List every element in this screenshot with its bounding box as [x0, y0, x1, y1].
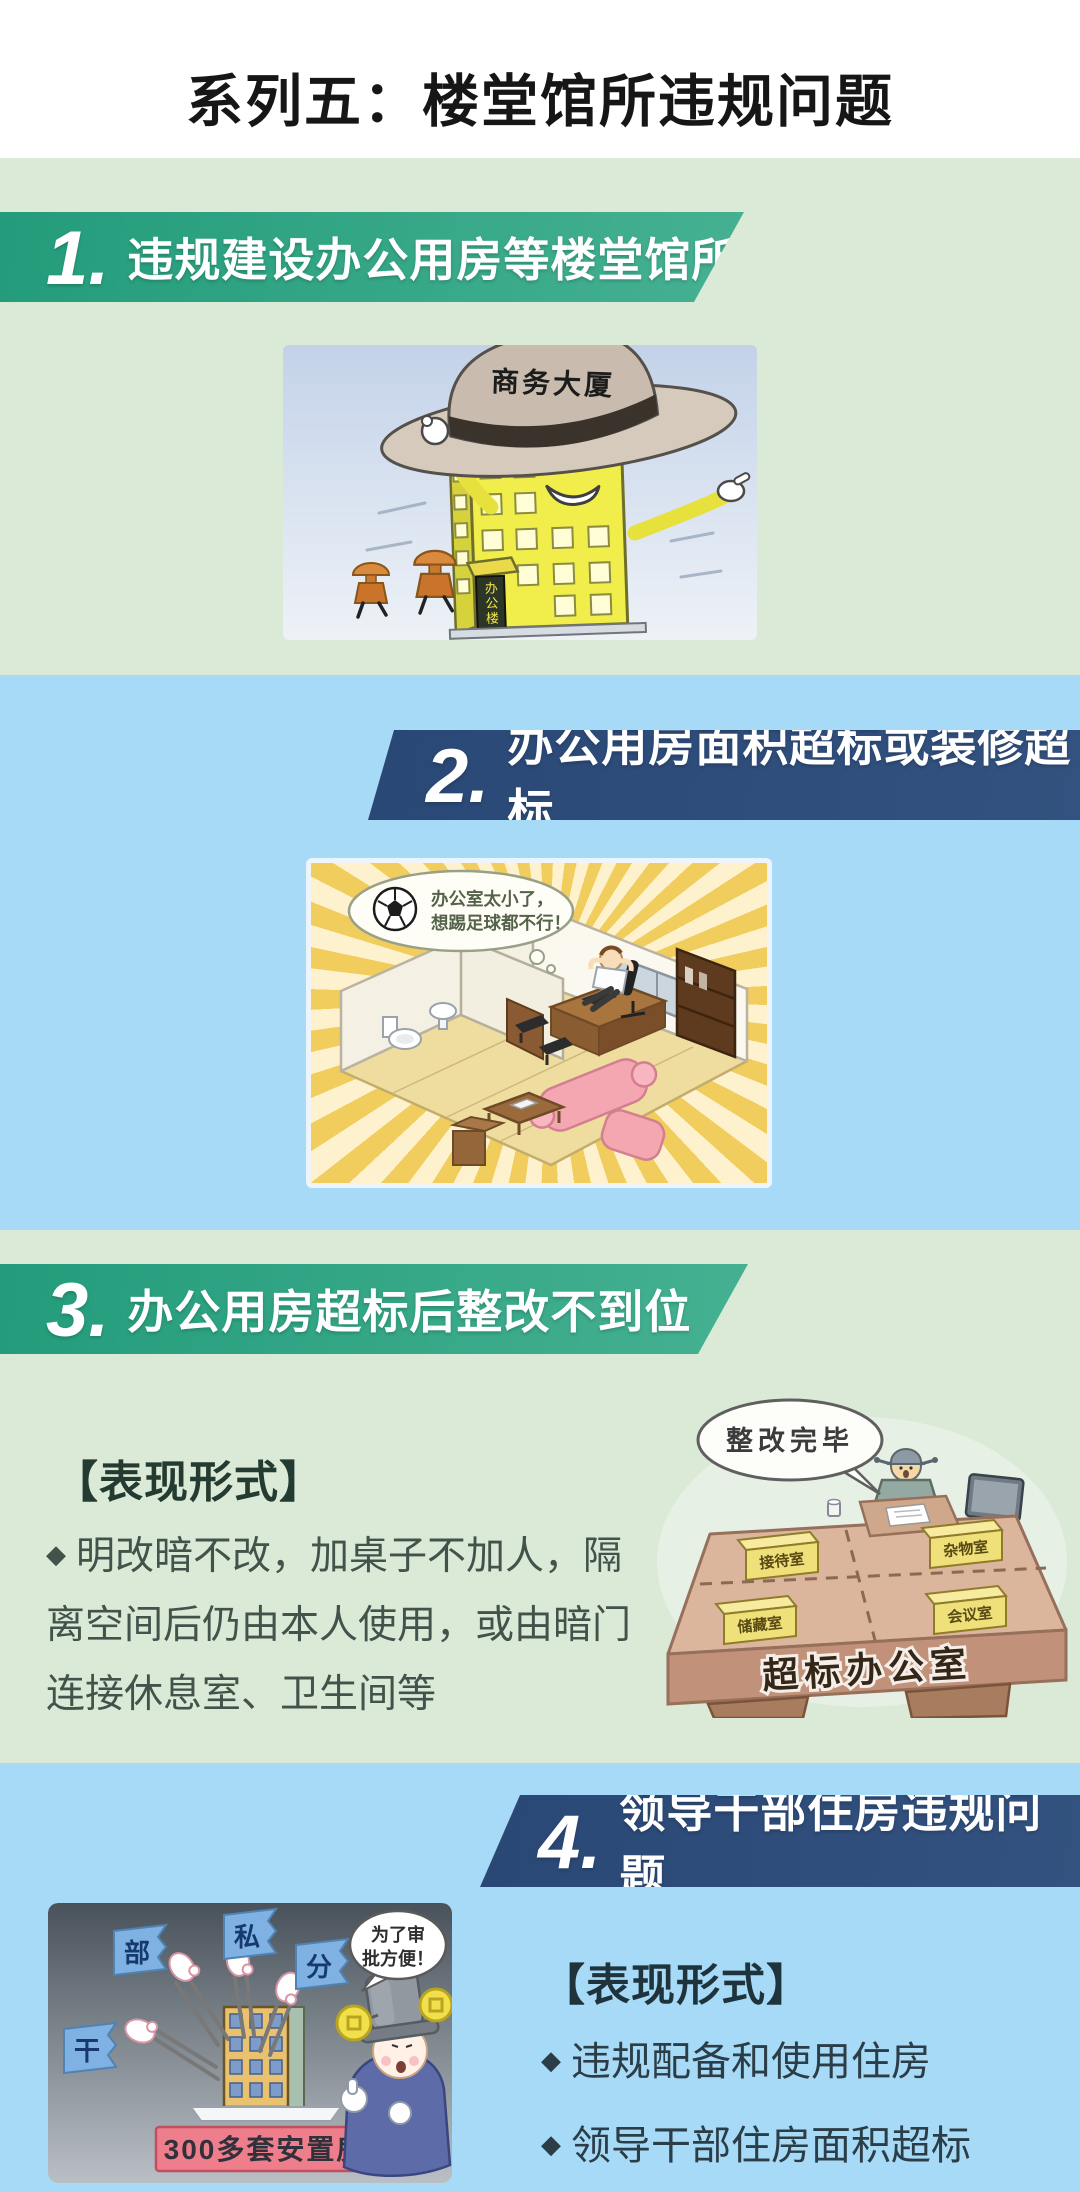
- oversized-office-cartoon: 办公室太小了， 想踢足球都不行！: [306, 858, 772, 1188]
- section-1: 1. 违规建设办公用房等楼堂馆所: [0, 158, 1080, 675]
- flag-text: 部: [124, 1938, 150, 1968]
- diamond-bullet-icon: ◆: [541, 2129, 561, 2159]
- section-2-banner: 2. 办公用房面积超标或装修超标: [368, 730, 1080, 820]
- flag-text: 分: [306, 1952, 332, 1982]
- bullet-text: 违规配备和使用住房: [571, 2040, 931, 2084]
- section-4-forms-heading: 【表现形式】: [541, 1949, 811, 2013]
- coin-icon: [420, 1989, 452, 2021]
- speech-text-line1: 办公室太小了，: [431, 889, 554, 909]
- bullet-item: ◆领导干部住房面积超标: [541, 2113, 971, 2171]
- section-1-number: 1.: [46, 221, 109, 297]
- section-3-forms-heading: 【表现形式】: [54, 1446, 324, 1510]
- speech-text: 整改完毕: [726, 1425, 854, 1456]
- building-cartoon-svg: 办公楼 商务大厦: [283, 345, 757, 640]
- bullet-text: 领导干部住房面积超标: [571, 2124, 971, 2168]
- tent-sign-reception: 接待室: [738, 1532, 818, 1580]
- section-2: 2. 办公用房面积超标或装修超标: [0, 675, 1080, 1230]
- housing-grab-cartoon: 300多套安置房 干: [48, 1903, 452, 2183]
- apartment-building: [224, 2007, 304, 2107]
- diamond-bullet-icon: ◆: [46, 1539, 66, 1569]
- flag-text: 干: [74, 2036, 100, 2066]
- speech-text-line2: 想踢足球都不行！: [430, 913, 571, 933]
- section-3-bullet: ◆明改暗不改，加桌子不加人，隔离空间后仍由本人使用，或由暗门连接休息室、卫生间等: [46, 1520, 642, 1729]
- oversized-office-svg: 办公室太小了， 想踢足球都不行！: [311, 863, 767, 1183]
- hat-label-text: 商务大厦: [491, 366, 616, 401]
- section-3-number: 3.: [46, 1273, 109, 1349]
- tent-sign-meeting: 会议室: [926, 1586, 1006, 1634]
- bullet-item: ◆违规配备和使用住房: [541, 2029, 971, 2087]
- section-4-bullets: ◆违规配备和使用住房 ◆领导干部住房面积超标: [541, 2029, 971, 2192]
- infographic-page: 系列五：楼堂馆所违规问题 1. 违规建设办公用房等楼堂馆所: [0, 0, 1080, 2192]
- tent-sign-storage: 杂物室: [922, 1520, 1002, 1568]
- section-3-banner: 3. 办公用房超标后整改不到位: [0, 1264, 748, 1354]
- section-4-title: 领导干部住房违规问题: [619, 1775, 1080, 1907]
- flag-text: 私: [234, 1922, 260, 1952]
- tent-sign-stockroom: 储藏室: [716, 1596, 796, 1644]
- page-title: 系列五：楼堂馆所违规问题: [0, 56, 1080, 138]
- section-2-number: 2.: [426, 739, 489, 815]
- building-cartoon: 办公楼 商务大厦: [283, 345, 757, 640]
- section-2-title: 办公用房面积超标或装修超标: [507, 709, 1080, 841]
- section-4-number: 4.: [538, 1805, 601, 1881]
- left-glove: [422, 416, 448, 444]
- section-4-banner: 4. 领导干部住房违规问题: [480, 1795, 1080, 1887]
- section-3-title: 办公用房超标后整改不到位: [127, 1276, 691, 1342]
- desk-rectification-svg: 接待室 杂物室 储藏室 会议室 超标办公室: [648, 1382, 1076, 1718]
- diamond-bullet-icon: ◆: [541, 2045, 561, 2075]
- section-1-title: 违规建设办公用房等楼堂馆所: [127, 224, 738, 290]
- soccer-ball-icon: [374, 888, 416, 930]
- plate: [191, 2107, 341, 2121]
- building-sign-text: 办公楼: [483, 581, 500, 626]
- desk-rectification-cartoon: 接待室 杂物室 储藏室 会议室 超标办公室: [648, 1382, 1076, 1718]
- speech-text-line1: 为了审: [371, 1924, 425, 1945]
- speech-text-line2: 批方便！: [362, 1948, 434, 1969]
- housing-grab-svg: 300多套安置房 干: [48, 1903, 452, 2183]
- section-3-bullet-text: 明改暗不改，加桌子不加人，隔离空间后仍由本人使用，或由暗门连接休息室、卫生间等: [46, 1535, 631, 1716]
- section-4: 4. 领导干部住房违规问题 【表现形式】 ◆违规配备和使用住房 ◆领导干部住房面…: [0, 1763, 1080, 2192]
- section-3: 3. 办公用房超标后整改不到位 【表现形式】 ◆明改暗不改，加桌子不加人，隔离空…: [0, 1230, 1080, 1763]
- plate-label-text: 300多套安置房: [164, 2133, 367, 2165]
- cup-icon: [828, 1500, 840, 1517]
- section-1-banner: 1. 违规建设办公用房等楼堂馆所: [0, 212, 744, 302]
